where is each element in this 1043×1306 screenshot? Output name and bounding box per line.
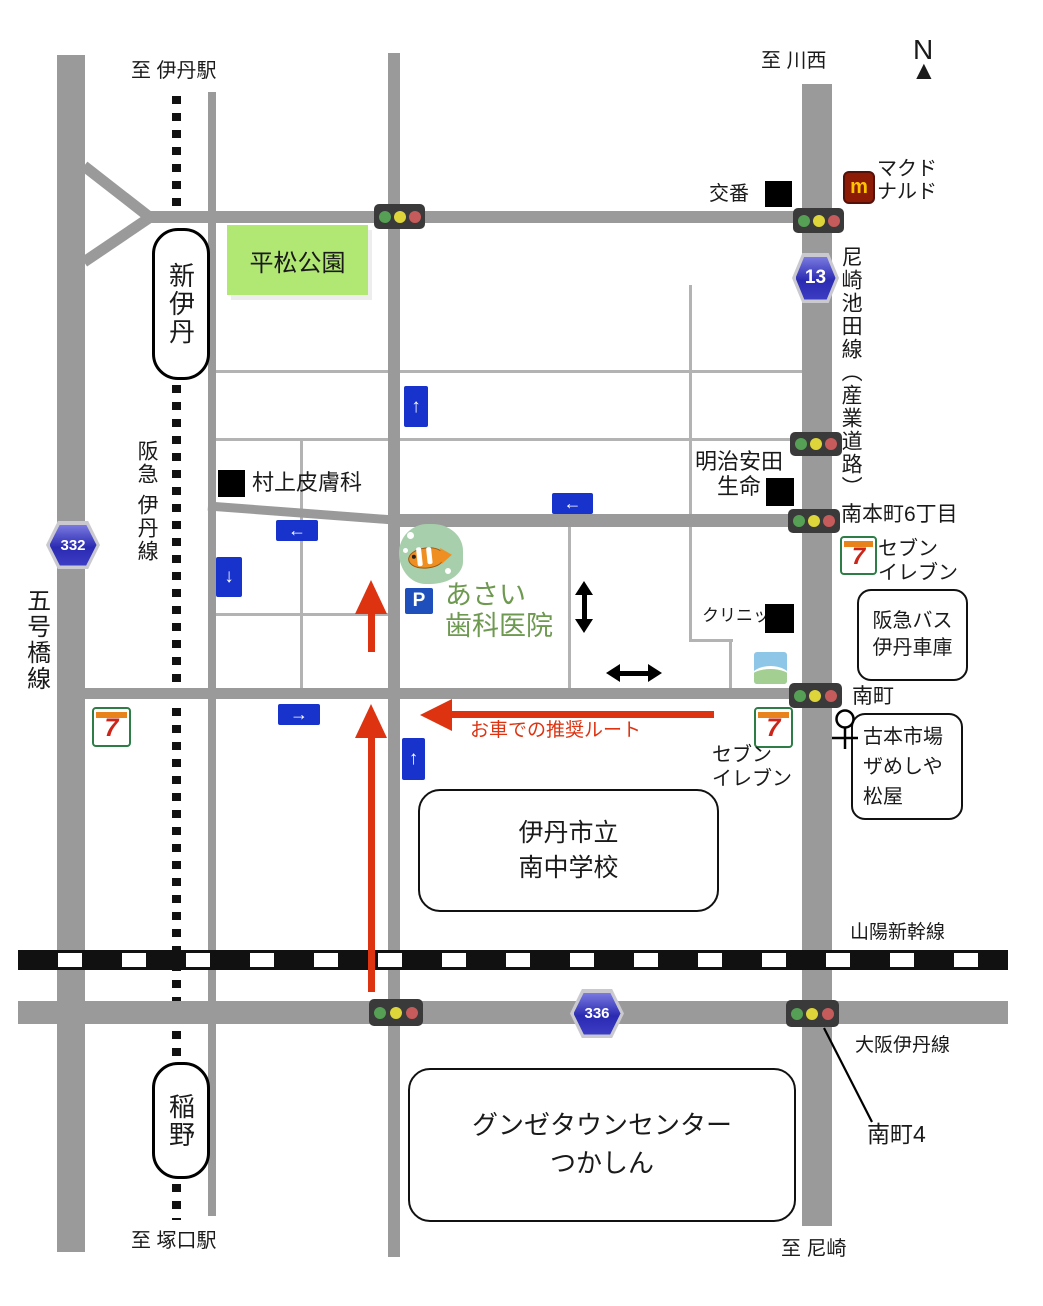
lane-h1: [212, 370, 802, 373]
school-line1: 伊丹市立: [518, 816, 618, 851]
label-mcdonalds-line2: ナルド: [877, 181, 937, 204]
furuhon-line3: 松屋: [863, 782, 903, 812]
route-arrow-up-shaft: [368, 610, 375, 652]
road-top-horizontal: [144, 211, 832, 223]
dest-amagasaki: 至 尼崎: [781, 1238, 847, 1261]
label-sanyo-shinkansen: 山陽新幹線: [850, 922, 945, 944]
label-seven-eleven-upper-line2: イレブン: [878, 561, 958, 585]
clownfish-icon: [407, 543, 455, 572]
y-junction-lower-diagonal: [84, 216, 152, 262]
gunze-line2: つかしん: [550, 1145, 654, 1183]
compass-north-triangle-icon: ▲: [911, 56, 937, 86]
road-minamicho-horizontal: [57, 688, 832, 699]
route-arrow-up-head: [355, 704, 387, 738]
arrow-shaft: [582, 593, 587, 621]
label-mcdonalds: マクド ナルド: [877, 158, 937, 204]
hankyu-bus-line2: 伊丹車庫: [873, 635, 953, 662]
lane-v2: [689, 285, 692, 517]
dest-kawanishi: 至 川西: [761, 50, 827, 73]
shinkansen-line: [18, 950, 1008, 970]
asai-clinic-tooth-logo: [399, 524, 463, 584]
seven-eleven-icon: 7: [92, 707, 131, 747]
arrow-head-right: [648, 664, 662, 682]
two-way-horizontal-arrow-icon: [606, 661, 662, 685]
two-way-vertical-arrow-icon: [572, 581, 596, 633]
school-line2: 南中学校: [518, 851, 618, 886]
label-asai-dental: あさい 歯科医院: [445, 580, 553, 642]
lane-v3: [689, 521, 692, 642]
road-central-vertical: [388, 53, 400, 1257]
route-arrow-left-head: [420, 699, 452, 731]
label-recommended-car-route: お車での推奨ルート: [470, 720, 641, 742]
clownfish-tail: [440, 547, 453, 564]
label-seven-eleven-lower-line2: イレブン: [712, 767, 792, 791]
label-minamicho: 南町: [852, 685, 894, 709]
one-way-left-sign: ←: [552, 493, 593, 514]
pool-park-grass: [754, 666, 787, 684]
hiramatsu-park-label: 平松公園: [250, 243, 346, 278]
station-inano: 稲野: [152, 1062, 210, 1179]
gunze-town-center-box: グンゼタウンセンター つかしん: [408, 1068, 796, 1222]
traffic-light-icon: [788, 509, 840, 533]
one-way-up-sign: ↑: [402, 738, 425, 780]
furuhon-line1: 古本市場: [863, 722, 943, 752]
station-shin-itami-label: 新伊丹: [163, 262, 200, 346]
label-minamihoncho6: 南本町6丁目: [841, 503, 958, 527]
station-shin-itami: 新伊丹: [152, 228, 210, 380]
traffic-light-icon: [790, 432, 842, 456]
hankyu-bus-depot-box: 阪急バス 伊丹車庫: [857, 589, 968, 681]
parking-icon: P: [405, 588, 433, 614]
label-koban: 交番: [709, 183, 749, 206]
label-hankyu-itami-line: 阪急 伊丹線: [134, 440, 158, 565]
lane-v5: [568, 521, 571, 691]
route-badge-336-number: 336: [574, 993, 621, 1035]
one-way-right-sign: →: [278, 704, 320, 725]
label-seven-eleven-lower: セブン イレブン: [712, 743, 792, 791]
label-gogobashi-line: 五号橋線: [22, 588, 50, 703]
station-inano-label: 稲野: [163, 1093, 200, 1149]
traffic-light-icon: [793, 208, 844, 233]
route-arrow-left-shaft: [450, 711, 714, 718]
label-meiji-yasuda-line1: 明治安田: [695, 449, 783, 474]
furuhon-line2: ザめしや: [863, 752, 943, 782]
lane-v4: [729, 639, 732, 691]
route-badge-13-number: 13: [796, 257, 836, 300]
seven-eleven-icon: 7: [840, 536, 877, 575]
gunze-line1: グンゼタウンセンター: [472, 1107, 732, 1145]
label-seven-eleven-upper-line1: セブン: [878, 537, 958, 561]
route-badge-336: 336: [570, 989, 624, 1038]
road-336-horizontal: [18, 1001, 1008, 1024]
bubble: [445, 568, 451, 574]
road-gogobashi-vertical: [57, 55, 85, 1252]
one-way-down-sign: ↓: [216, 557, 242, 597]
arrow-head-up: [575, 581, 593, 595]
clinic-building-square: [765, 604, 794, 633]
dest-itami-station: 至 伊丹駅: [131, 60, 217, 83]
traffic-light-icon: [789, 683, 842, 708]
label-asai-line1: あさい: [445, 580, 553, 611]
arrow-shaft: [618, 671, 650, 676]
label-osaka-itami-line: 大阪伊丹線: [855, 1035, 950, 1057]
traffic-light-icon: [374, 204, 425, 229]
lane-h4: [689, 639, 733, 642]
hankyu-bus-line1: 阪急バス: [873, 608, 953, 635]
label-seven-eleven-lower-line1: セブン: [712, 743, 792, 767]
arrow-head-left: [606, 664, 620, 682]
mcdonalds-icon: m: [843, 171, 875, 204]
route-badge-332: 332: [46, 521, 100, 569]
furuhon-box: 古本市場 ザめしや 松屋: [851, 713, 963, 820]
seven-eleven-icon: 7: [754, 707, 793, 748]
route-badge-332-number: 332: [50, 525, 97, 566]
route-arrow-up-head: [355, 580, 387, 614]
arrow-head-down: [575, 619, 593, 633]
y-junction-upper-diagonal: [84, 166, 152, 219]
koban-building-square: [765, 181, 792, 207]
seven-eleven-7-glyph: 7: [756, 711, 791, 746]
route-arrow-up-shaft: [368, 734, 375, 992]
dest-tsukaguchi-station: 至 塚口駅: [131, 1230, 217, 1253]
hiramatsu-park-area: 平松公園: [227, 225, 368, 295]
traffic-light-icon: [786, 1000, 839, 1027]
one-way-left-sign: ←: [276, 520, 318, 541]
pool-park-icon: [754, 652, 787, 684]
label-asai-line2: 歯科医院: [445, 611, 553, 642]
label-seven-eleven-upper: セブン イレブン: [878, 537, 958, 585]
traffic-light-icon: [369, 999, 423, 1026]
mcdonalds-m-glyph: m: [850, 176, 868, 199]
one-way-up-sign: ↑: [404, 386, 428, 427]
seven-eleven-7-glyph: 7: [94, 711, 129, 745]
meiji-yasuda-building-square: [766, 478, 794, 506]
access-map: 至 伊丹駅 至 川西 至 塚口駅 至 尼崎 N ▲ 新伊丹 稲野 阪急 伊丹線 …: [0, 0, 1043, 1306]
seven-eleven-7-glyph: 7: [842, 540, 875, 573]
label-murakami-dermatology: 村上皮膚科: [252, 470, 362, 495]
bubble: [407, 532, 414, 539]
label-mcdonalds-line1: マクド: [877, 158, 937, 181]
label-minamicho4: 南町4: [867, 1121, 926, 1147]
minami-junior-high-box: 伊丹市立 南中学校: [418, 789, 719, 912]
murakami-building-square: [218, 470, 245, 497]
